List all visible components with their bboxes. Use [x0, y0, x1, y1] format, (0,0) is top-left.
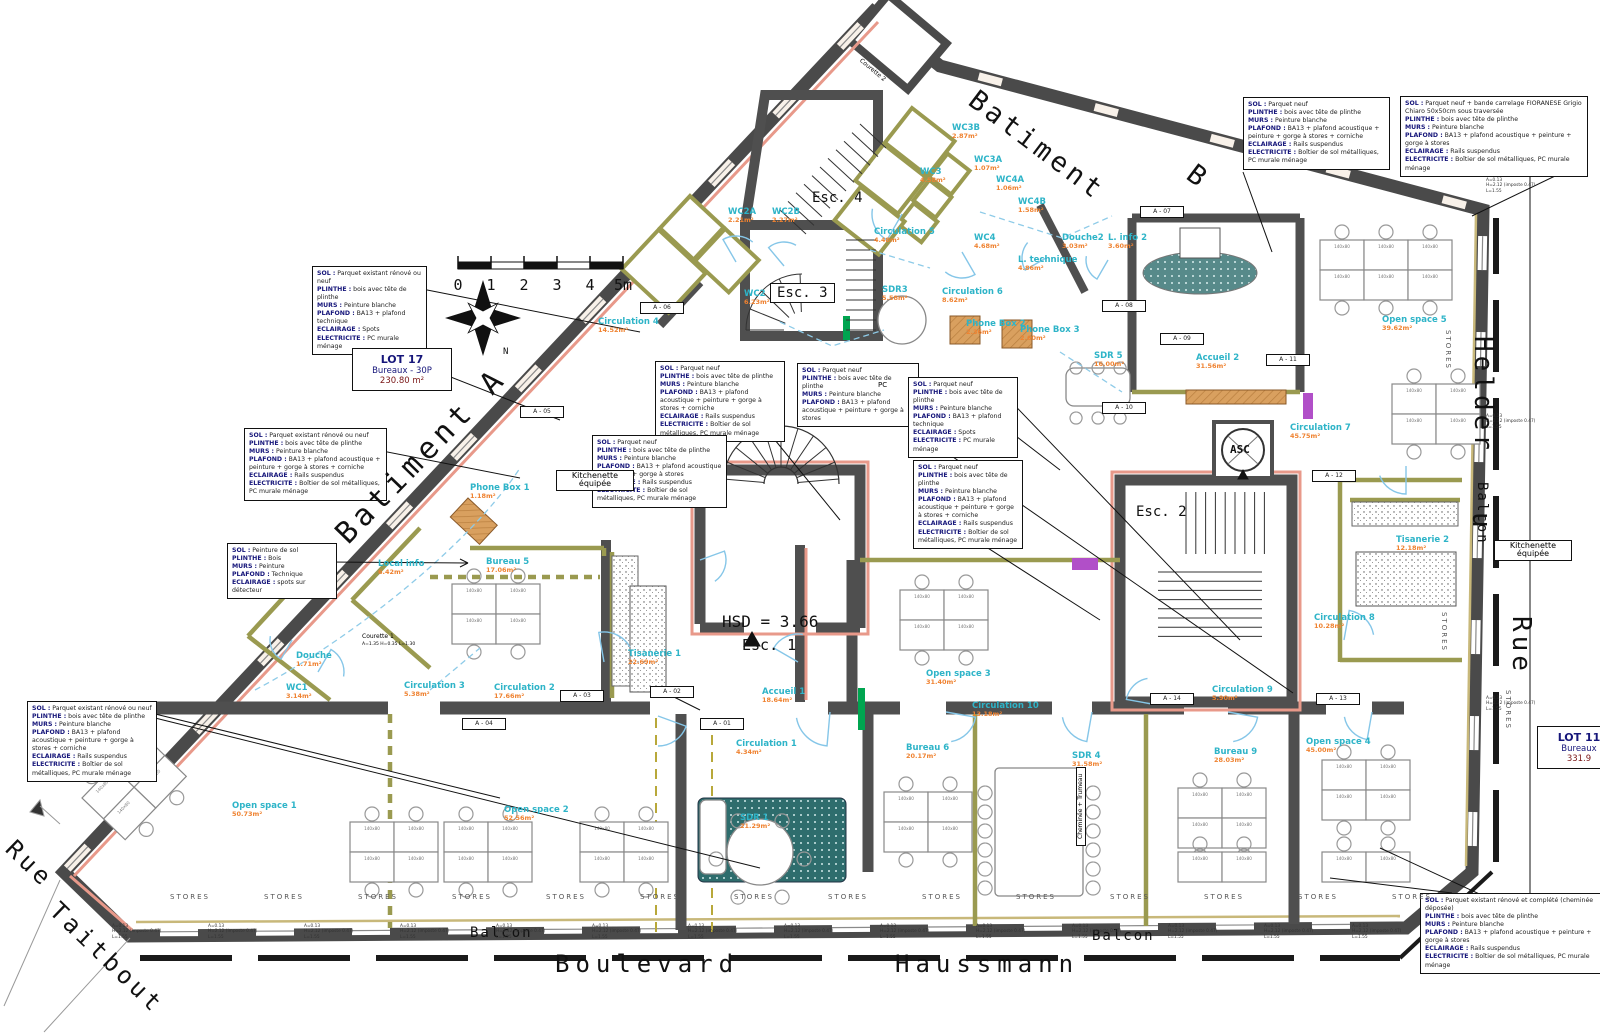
room-area: 1.07m²	[974, 165, 1002, 172]
window-note-13: A=0.13H=2.12 (imposte 0.47)L=1.55	[1264, 924, 1313, 940]
room-label-circulation-10: Circulation 1013.18m²	[972, 702, 1039, 718]
spec-box-8: SOL : Parquet neufPLINTHE : bois avec tê…	[908, 377, 1018, 458]
room-label-wc3b: WC3B2.87m²	[952, 124, 980, 140]
lot-11-line3: 331.9	[1544, 754, 1600, 764]
room-label-phone-box-3: Phone Box 32.60m²	[1020, 326, 1080, 342]
desk-size-label: 140x80	[1406, 388, 1422, 393]
room-area: 2.87m²	[952, 133, 980, 140]
spec-box-10: SOL : Parquet neufPLINTHE : bois avec tê…	[1243, 97, 1390, 170]
spec-box-3: SOL : Peinture de solPLINTHE : BoisMURS …	[227, 543, 337, 599]
stores-label-6: STORES	[640, 893, 680, 901]
stores-label-8: STORES	[828, 893, 868, 901]
desk-size-label: 140x80	[1334, 244, 1350, 249]
scale-tick-label: 1	[486, 276, 495, 294]
room-label-sdr-1: SDR 121.29m²	[740, 814, 770, 830]
marker-a-13: A - 13	[1316, 693, 1360, 705]
stores-label-12: STORES	[1204, 893, 1244, 901]
spec-box-4: SOL : Parquet existant rénové ou neufPLI…	[27, 701, 157, 782]
window-note-side-1: A=0.13H=2.12 (imposte 0.47)L=1.55	[1486, 178, 1535, 194]
room-area: 45.00m²	[1306, 747, 1371, 754]
room-area: 1.71m²	[296, 661, 332, 668]
scale-tick-label: 2	[519, 276, 528, 294]
desk-size-label: 140x80	[1336, 764, 1352, 769]
room-area: 2.36m²	[966, 329, 1026, 336]
room-label-phone-box-1: Phone Box 11.18m²	[470, 484, 530, 500]
room-label-douche-2: Douche23.03m²	[1062, 234, 1104, 250]
room-area: 4.58m²	[920, 177, 946, 184]
stores-label-10: STORES	[1016, 893, 1056, 901]
desk-size-label: 140x80	[458, 856, 474, 861]
marker-a-03: A - 03	[560, 690, 604, 702]
north-label: N	[503, 347, 508, 357]
spec-box-5: SOL : Parquet neufPLINTHE : bois avec tê…	[655, 361, 785, 442]
stores-label-2: STORES	[264, 893, 304, 901]
room-label-bureau-5: Bureau 517.06m²	[486, 558, 529, 574]
room-area: 13.18m²	[972, 711, 1039, 718]
desk-size-label: 140x80	[1236, 792, 1252, 797]
stores-label-11: STORES	[1110, 893, 1150, 901]
desk-size-label: 140x80	[898, 826, 914, 831]
desk-size-label: 140x80	[1236, 822, 1252, 827]
spec-box-6: SOL : Parquet neufPLINTHE : bois avec tê…	[592, 435, 727, 508]
window-note-9: A=0.13H=2.12 (imposte 0.47)L=1.55	[880, 924, 929, 940]
room-area: 1.58m²	[1018, 207, 1046, 214]
room-area: 5.90m²	[1212, 695, 1273, 702]
room-label-circulation-4: Circulation 414.52m²	[598, 318, 659, 334]
scale-bar-segment	[524, 262, 557, 269]
room-label-circulation-3: Circulation 35.38m²	[404, 682, 465, 698]
spec-box-12: SOL : Parquet existant rénové et complét…	[1420, 893, 1600, 974]
window-note-12: A=0.13H=2.12 (imposte 0.47)L=1.55	[1168, 924, 1217, 940]
room-label-wc3a: WC3A1.07m²	[974, 156, 1002, 172]
desk-size-label: 140x80	[1192, 856, 1208, 861]
desk-size-label: 140x80	[1422, 244, 1438, 249]
room-area: 21.29m²	[740, 823, 770, 830]
scale-bar-segment	[557, 262, 590, 269]
room-area: 1.18m²	[470, 493, 530, 500]
room-area: 2.21m²	[728, 217, 756, 224]
room-area: 4.34m²	[736, 749, 797, 756]
stores-label-14: STORES	[1392, 893, 1432, 901]
window-note-14: A=0.13H=2.12 (imposte 0.47)L=1.55	[1352, 924, 1401, 940]
marker-a-07: A - 07	[1140, 206, 1184, 218]
room-area: 20.17m²	[906, 753, 949, 760]
room-area: 2.60m²	[1020, 335, 1080, 342]
stores-label-1: STORES	[170, 893, 210, 901]
desk-size-label: 140x80	[1380, 764, 1396, 769]
spec-box-7: SOL : Parquet neufPLINTHE : bois avec tê…	[797, 363, 919, 427]
marker-a-02: A - 02	[650, 686, 694, 698]
window-note-5: A=0.13H=2.12 (imposte 0.47)L=1.55	[496, 924, 545, 940]
desk-size-label: 140x80	[914, 624, 930, 629]
stores-label-7: STORES	[734, 893, 774, 901]
stores-label-9: STORES	[922, 893, 962, 901]
room-label-bureau-9: Bureau 928.03m²	[1214, 748, 1257, 764]
scale-tick-label: 4	[585, 276, 594, 294]
lot-17-line2: Bureaux - 30P	[359, 366, 445, 376]
desk-size-label: 140x80	[502, 826, 518, 831]
desk-size-label: 140x80	[1450, 418, 1466, 423]
room-label-circulation-1: Circulation 14.34m²	[736, 740, 797, 756]
window-note-11: A=0.13H=2.12 (imposte 0.47)L=1.55	[1072, 924, 1121, 940]
sdr4-table	[995, 768, 1083, 896]
scale-bar-segment	[458, 262, 491, 269]
room-area: 45.75m²	[1290, 433, 1351, 440]
stores-label-4: STORES	[452, 893, 492, 901]
scale-tick-label: 3	[552, 276, 561, 294]
desk-size-label: 140x80	[1336, 794, 1352, 799]
scale-tick-label: 0	[453, 276, 462, 294]
room-area: 18.64m²	[762, 697, 805, 704]
room-label-accueil-1: Accueil 118.64m²	[762, 688, 805, 704]
desk-size-label: 140x80	[1422, 274, 1438, 279]
room-label-circulation-8: Circulation 810.28m²	[1314, 614, 1375, 630]
room-area: 39.62m²	[1382, 325, 1447, 332]
room-label-tisanerie-1: Tisanerie 122.69m²	[628, 650, 681, 666]
purple-strip-2	[1303, 393, 1313, 419]
desk-size-label: 140x80	[1236, 856, 1252, 861]
desk-size-label: 140x80	[1380, 856, 1396, 861]
room-label-accueil-2: Accueil 231.56m²	[1196, 354, 1239, 370]
marker-a-10: A - 10	[1102, 402, 1146, 414]
room-area: 3.60m²	[1108, 243, 1147, 250]
desk-size-label: 140x80	[364, 826, 380, 831]
room-label-wc2: WC26.23m²	[744, 290, 770, 306]
desk-size-label: 140x80	[942, 826, 958, 831]
room-label-circulation-7: Circulation 745.75m²	[1290, 424, 1351, 440]
desk-size-label: 140x80	[502, 856, 518, 861]
desk-size-label: 140x80	[1334, 274, 1350, 279]
room-area: 17.06m²	[486, 567, 529, 574]
room-area: 31.40m²	[926, 679, 991, 686]
room-area: 6.23m²	[744, 299, 770, 306]
marker-a-11: A - 11	[1266, 354, 1310, 366]
room-label-circulation-5: Circulation 54.48m²	[874, 228, 935, 244]
window-note-side-3: A=0.13H=2.12 (imposte 0.47)L=1.55	[1486, 696, 1535, 712]
room-label-local-info: Local info6.42m²	[378, 560, 424, 576]
desk-size-label: 140x80	[958, 594, 974, 599]
stores-side-label-1: STORES	[1444, 330, 1452, 370]
window-note-2: A=0.13H=2.12 (imposte 0.47)L=1.55	[208, 924, 257, 940]
room-area: 12.18m²	[1396, 545, 1449, 552]
purple-strip-1	[1072, 558, 1098, 570]
room-label-sdr-4: SDR 431.58m²	[1072, 752, 1102, 768]
desk-size-label: 140x80	[458, 826, 474, 831]
marker-a-06: A - 06	[640, 302, 684, 314]
tisanerie1-table	[630, 586, 666, 692]
room-area: 31.56m²	[1196, 363, 1239, 370]
room-area: 6.42m²	[378, 569, 424, 576]
room-label-sdr-3: SDR35.58m²	[882, 286, 908, 302]
scale-bar-segment	[491, 262, 524, 269]
room-label-l-technique: L. technique4.86m²	[1018, 256, 1077, 272]
desk-size-label: 140x80	[1380, 794, 1396, 799]
sdr3-table	[878, 296, 926, 344]
room-label-wc3: WC34.58m²	[920, 168, 946, 184]
esc1-label: Esc. 1	[742, 636, 796, 654]
marker-a-14: A - 14	[1150, 693, 1194, 705]
desk-size-label: 140x80	[510, 588, 526, 593]
desk-size-label: 140x80	[594, 856, 610, 861]
room-area: 28.03m²	[1214, 757, 1257, 764]
marker-a-12: A - 12	[1312, 470, 1356, 482]
desk-size-label: 140x80	[364, 856, 380, 861]
scale-tick-label: 5m	[614, 276, 632, 294]
room-area: 31.58m²	[1072, 761, 1102, 768]
room-area: 10.28m²	[1314, 623, 1375, 630]
room-label-wc4: WC44.68m²	[974, 234, 1000, 250]
desk-size-label: 140x80	[466, 618, 482, 623]
desk-size-label: 140x80	[638, 856, 654, 861]
window-note-side-2: A=0.13H=2.12 (imposte 0.47)L=1.55	[1486, 414, 1535, 430]
room-label-circulation-9: Circulation 95.90m²	[1212, 686, 1273, 702]
room-label-wc2a: WC2A2.21m²	[728, 208, 756, 224]
room-area: 50.73m²	[232, 811, 297, 818]
desk-size-label: 140x80	[958, 624, 974, 629]
room-label-l-info-2: L. info 23.60m²	[1108, 234, 1147, 250]
room-label-wc1: WC13.14m²	[286, 684, 312, 700]
room-area: 17.66m²	[494, 693, 555, 700]
room-label-open-space-2: Open space 252.56m²	[504, 806, 569, 822]
hsd-height-note: HSD = 3.66	[722, 612, 818, 631]
green-strip-1	[858, 688, 865, 730]
desk-size-label: 140x80	[408, 826, 424, 831]
desks-open-space-5a: 140x80140x80140x80140x80140x80140x80	[1320, 225, 1452, 315]
desk-size-label: 140x80	[1406, 418, 1422, 423]
asc-label: ASC	[1230, 443, 1250, 456]
desk-size-label: 140x80	[638, 826, 654, 831]
room-area: 52.56m²	[504, 815, 569, 822]
room-area: 5.58m²	[882, 295, 908, 302]
room-area: 4.68m²	[974, 243, 1000, 250]
spec-box-11: SOL : Parquet neuf + bande carrelage FIO…	[1400, 96, 1588, 177]
desk-size-label: 140x80	[1450, 388, 1466, 393]
desk-size-label: 140x80	[942, 796, 958, 801]
room-label-circulation-6: Circulation 68.62m²	[942, 288, 1003, 304]
lot-17-line1: LOT 17	[359, 353, 445, 366]
desk-size-label: 140x80	[1192, 822, 1208, 827]
desk-size-label: 140x80	[898, 796, 914, 801]
window-note-7: A=0.13H=2.12 (imposte 0.47)L=1.55	[688, 924, 737, 940]
stores-label-3: STORES	[358, 893, 398, 901]
stores-side-label-2: STORES	[1440, 612, 1448, 652]
desk-size-label: 140x80	[466, 588, 482, 593]
desk-size-label: 140x80	[1192, 792, 1208, 797]
lot-17-line3: 230.80 m²	[359, 376, 445, 386]
room-area: 3.14m²	[286, 693, 312, 700]
marker-a-08: A - 08	[1102, 300, 1146, 312]
desk-size-label: 140x80	[1378, 274, 1394, 279]
room-area: 16.00m²	[1094, 361, 1124, 368]
spec-box-9: SOL : Parquet neufPLINTHE : bois avec tê…	[913, 460, 1023, 549]
room-label-bureau-6: Bureau 620.17m²	[906, 744, 949, 760]
esc3-label: Esc. 3	[770, 283, 835, 303]
scale-bar-segment	[590, 262, 623, 269]
room-area: 14.52m²	[598, 327, 659, 334]
marker-a-01: A - 01	[700, 718, 744, 730]
window-note-4: A=0.13H=2.12 (imposte 0.47)L=1.55	[400, 924, 449, 940]
lot-17: LOT 17Bureaux - 30P230.80 m²	[352, 348, 452, 391]
marker-a-05: A - 05	[520, 406, 564, 418]
room-area: 4.48m²	[874, 237, 935, 244]
window-note-6: A=0.13H=2.12 (imposte 0.47)L=1.55	[592, 924, 641, 940]
room-label-open-space-4: Open space 445.00m²	[1306, 738, 1371, 754]
wood-sill	[1186, 390, 1286, 404]
room-label-open-space-3: Open space 331.40m²	[926, 670, 991, 686]
lot-11-line2: Bureaux	[1544, 744, 1600, 754]
marker-a-09: A - 09	[1160, 333, 1204, 345]
room-area: 2.27m²	[772, 217, 800, 224]
desk-size-label: 140x80	[510, 618, 526, 623]
room-label-tisanerie-2: Tisanerie 212.18m²	[1396, 536, 1449, 552]
window-note-1: A=0.13H=2.12 (imposte 0.47)L=1.55	[112, 924, 161, 940]
floor-plan-canvas: 140x80140x80140x80140x80140x80140x80140x…	[0, 0, 1600, 1033]
desk-size-label: 140x80	[914, 594, 930, 599]
room-area: 22.69m²	[628, 659, 681, 666]
window-note-3: A=0.13H=2.12 (imposte 0.47)L=1.55	[304, 924, 353, 940]
room-area: 3.03m²	[1062, 243, 1104, 250]
room-area: 8.62m²	[942, 297, 1003, 304]
room-label-sdr-5: SDR 516.00m²	[1094, 352, 1124, 368]
room-label-douche: Douche1.71m²	[296, 652, 332, 668]
lot-11-line1: LOT 11	[1544, 731, 1600, 744]
room-label-phone-box-2: Phone Box 22.36m²	[966, 320, 1026, 336]
esc4-label: Esc. 4	[812, 190, 863, 206]
spec-box-1: SOL : Parquet existant rénové ou neufPLI…	[312, 266, 427, 355]
room-area: 4.86m²	[1018, 265, 1077, 272]
spec-box-2: SOL : Parquet existant rénové ou neufPLI…	[244, 428, 387, 501]
window-note-10: A=0.13H=2.12 (imposte 0.47)L=1.55	[976, 924, 1025, 940]
room-area: 1.06m²	[996, 185, 1024, 192]
lot-11: LOT 11Bureaux331.9	[1537, 726, 1600, 769]
room-area: 5.38m²	[404, 691, 465, 698]
tisanerie2-table	[1356, 552, 1456, 606]
window-note-8: A=0.13H=2.12 (imposte 0.47)L=1.55	[784, 924, 833, 940]
stores-label-5: STORES	[546, 893, 586, 901]
room-label-open-space-1: Open space 150.73m²	[232, 802, 297, 818]
desk-size-label: 140x80	[408, 856, 424, 861]
room-label-open-space-5: Open space 539.62m²	[1382, 316, 1447, 332]
stores-label-13: STORES	[1298, 893, 1338, 901]
esc2-label: Esc. 2	[1136, 504, 1187, 520]
room-label-wc2b: WC2B2.27m²	[772, 208, 800, 224]
desk-size-label: 140x80	[1378, 244, 1394, 249]
desk-size-label: 140x80	[1336, 856, 1352, 861]
marker-a-04: A - 04	[462, 718, 506, 730]
accueil2-fixture	[1180, 228, 1220, 258]
room-label-wc4b: WC4B1.58m²	[1018, 198, 1046, 214]
room-label-wc4a: WC4A1.06m²	[996, 176, 1024, 192]
room-label-circulation-2: Circulation 217.66m²	[494, 684, 555, 700]
kitchen-counter-2	[1352, 502, 1458, 526]
